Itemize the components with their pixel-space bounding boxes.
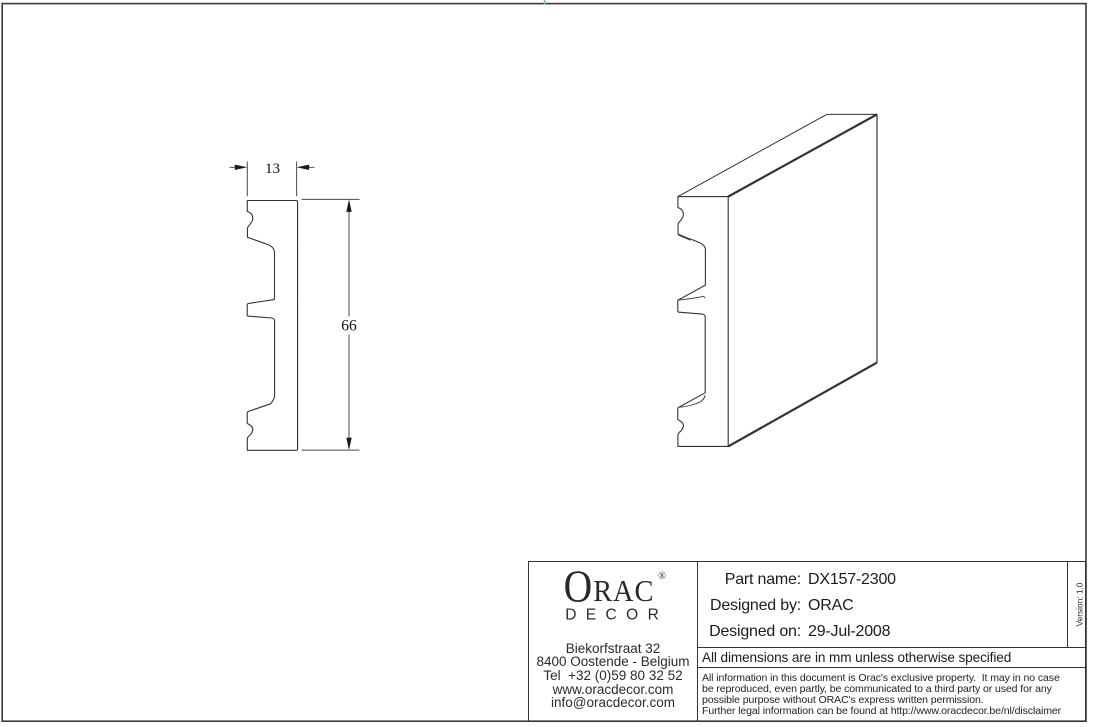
svg-text:O: O bbox=[563, 562, 592, 612]
svg-text:13: 13 bbox=[265, 161, 280, 177]
svg-text:RAC: RAC bbox=[593, 575, 654, 608]
svg-text:DECOR: DECOR bbox=[565, 606, 668, 623]
svg-text:®: ® bbox=[658, 571, 666, 582]
svg-text:66: 66 bbox=[341, 318, 357, 335]
